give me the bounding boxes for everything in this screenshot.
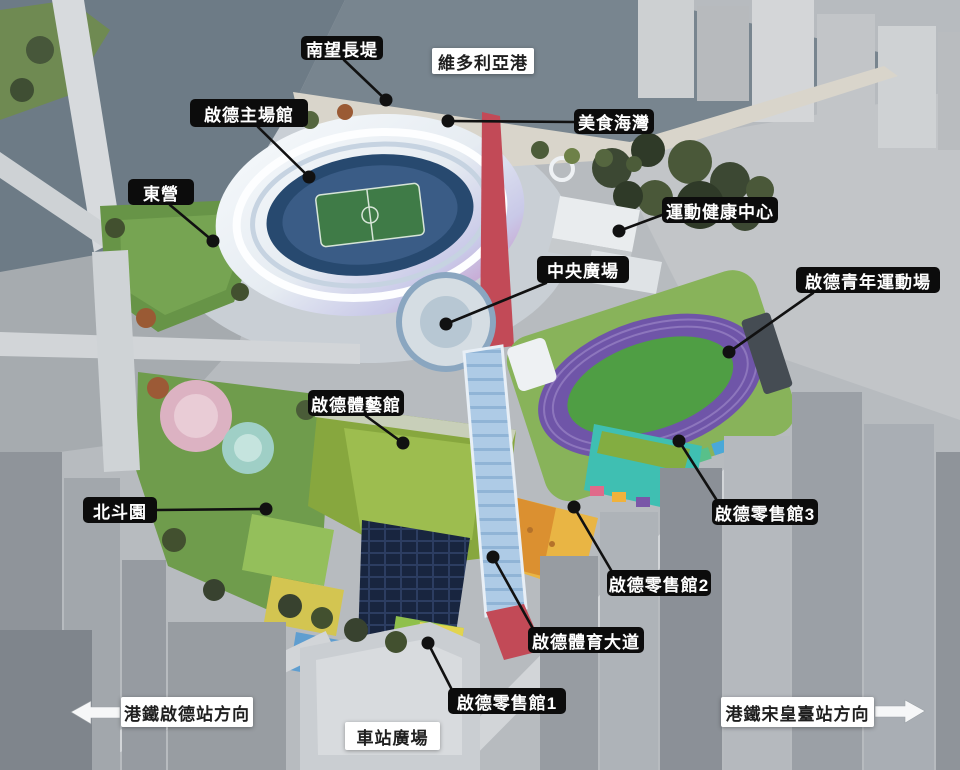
- label-station-square: 車站廣場: [345, 722, 440, 750]
- label-dining-cove: 美食海灣: [574, 109, 654, 134]
- label-victoria-harbour: 維多利亞港: [432, 48, 534, 74]
- label-retail-hall-1: 啟德零售館1: [448, 688, 566, 714]
- label-mtr-sung-wong-toi-direction: 港鐵宋皇臺站方向: [721, 697, 874, 727]
- label-south-promenade: 南望長堤: [301, 36, 383, 60]
- label-wellness-centre: 運動健康中心: [662, 197, 778, 223]
- label-youth-sports-ground: 啟德青年運動場: [796, 267, 940, 293]
- label-east-camp: 東營: [128, 179, 194, 205]
- aerial-site-map: 南望長堤維多利亞港啟德主場館東營美食海灣運動健康中心中央廣場啟德青年運動場啟德體…: [0, 0, 960, 770]
- label-retail-hall-3: 啟德零售館3: [712, 499, 818, 525]
- label-mtr-kai-tak-direction: 港鐵啟德站方向: [121, 697, 253, 727]
- label-north-dipper-garden: 北斗園: [83, 497, 157, 523]
- label-sports-avenue: 啟德體育大道: [528, 627, 644, 653]
- label-main-stadium: 啟德主場館: [190, 99, 308, 127]
- label-indoor-sports-centre: 啟德體藝館: [308, 390, 404, 416]
- label-retail-hall-2: 啟德零售館2: [607, 570, 711, 596]
- label-central-square: 中央廣場: [537, 256, 629, 283]
- annotation-layer: 南望長堤維多利亞港啟德主場館東營美食海灣運動健康中心中央廣場啟德青年運動場啟德體…: [0, 0, 960, 770]
